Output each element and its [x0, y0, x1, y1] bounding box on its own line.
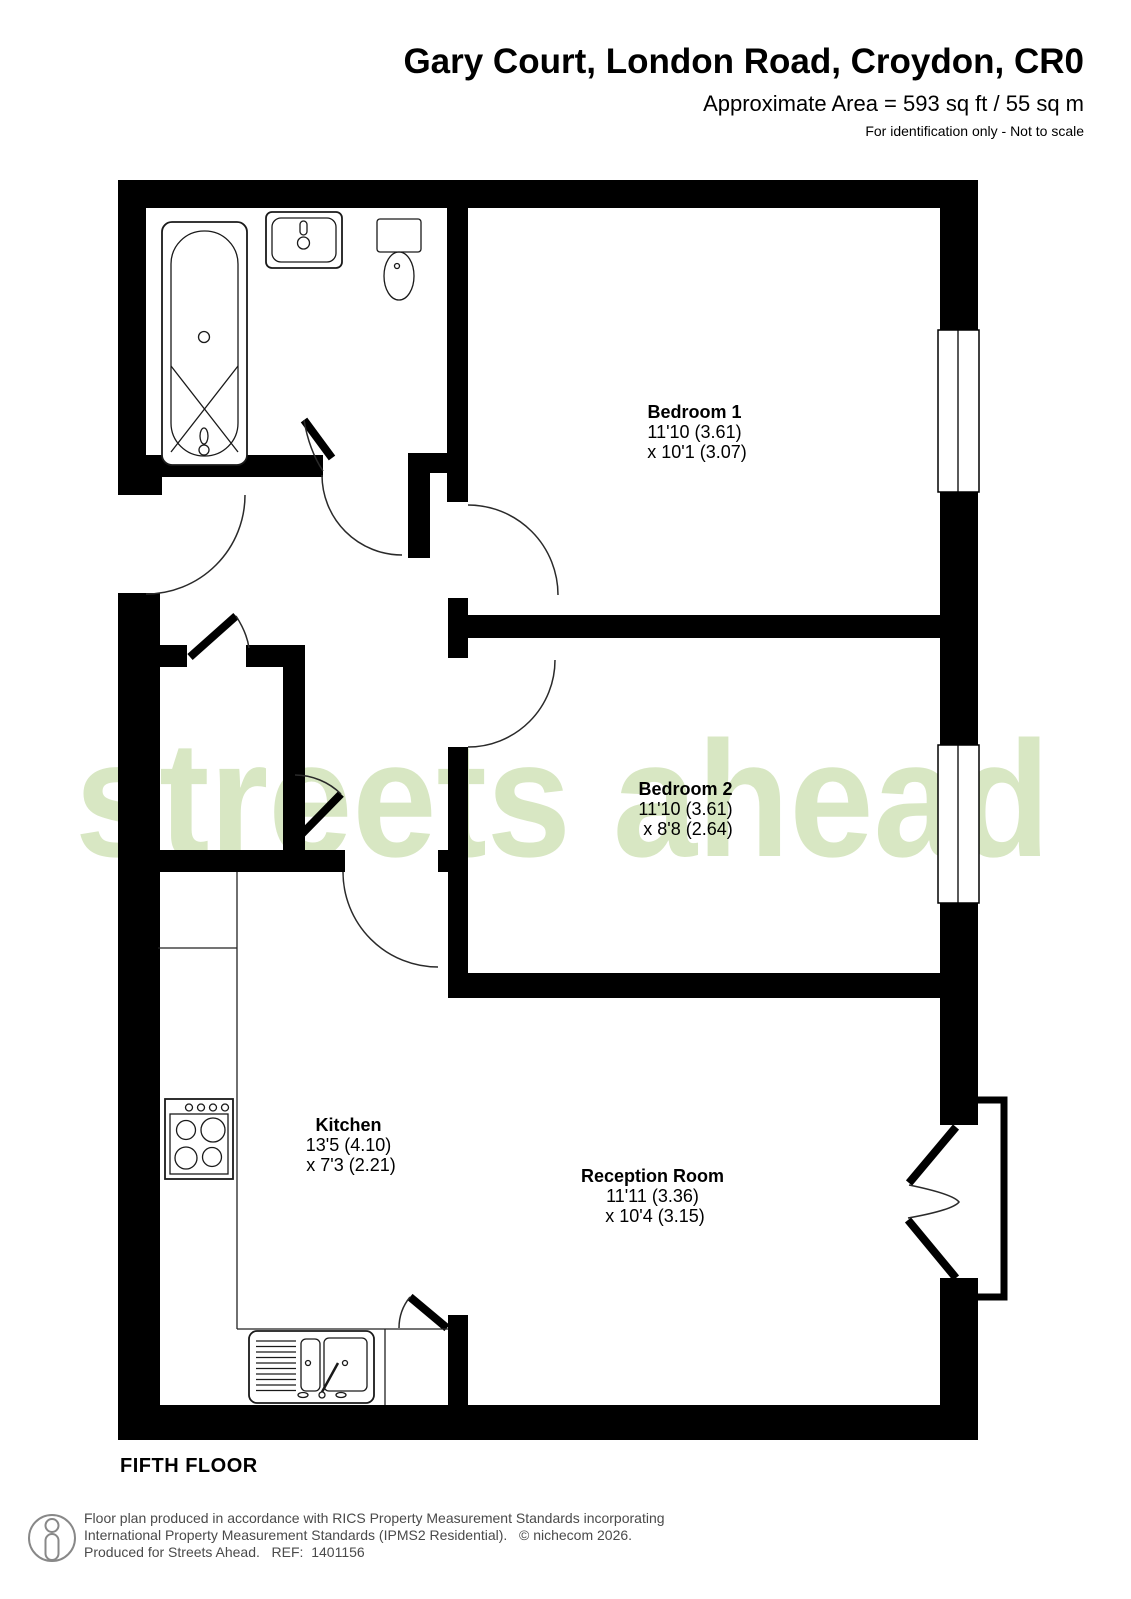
bedroom2-name: Bedroom 2 — [638, 779, 732, 799]
wall-right-a — [940, 208, 978, 330]
reception-name: Reception Room — [581, 1166, 724, 1186]
sink-unit-outer — [249, 1331, 374, 1403]
bedroom2-dim2: x 8'8 (2.64) — [643, 819, 732, 839]
bedroom1-dim1: 11'10 (3.61) — [647, 422, 741, 442]
wall-hall-stub — [408, 453, 430, 558]
footer-line-3: Produced for Streets Ahead. REF: 1401156 — [84, 1544, 365, 1560]
page-title: Gary Court, London Road, Croydon, CR0 — [403, 42, 1084, 81]
room-label-bedroom2: Bedroom 2 11'10 (3.61) x 8'8 (2.64) — [638, 779, 737, 839]
room-label-bedroom1: Bedroom 1 11'10 (3.61) x 10'1 (3.07) — [647, 402, 747, 462]
bathtub-icon — [162, 222, 247, 465]
floor-label: FIFTH FLOOR — [120, 1455, 258, 1477]
wall-bedroom-divider — [468, 615, 940, 638]
toilet-recess — [372, 208, 424, 256]
footer-line-2: International Property Measurement Stand… — [84, 1527, 632, 1543]
wall-cupboard-top-right — [246, 645, 305, 667]
basin-icon — [266, 212, 342, 268]
kitchen-name: Kitchen — [315, 1115, 381, 1135]
wall-bedroom-divider-jamb — [448, 598, 468, 658]
wall-left-upper — [118, 180, 146, 495]
room-label-kitchen: Kitchen 13'5 (4.10) x 7'3 (2.21) — [306, 1115, 397, 1175]
kitchen-dim2: x 7'3 (2.21) — [306, 1155, 395, 1175]
wall-top — [118, 180, 978, 208]
wall-bottom — [118, 1405, 978, 1440]
wall-kitchen-top — [158, 850, 345, 872]
wall-cupboard-right — [283, 665, 305, 855]
kitchen-dim1: 13'5 (4.10) — [306, 1135, 392, 1155]
kitchen-sink-icon — [249, 1331, 374, 1403]
wall-reception-door-stub — [448, 1315, 468, 1405]
reception-dim2: x 10'4 (3.15) — [605, 1206, 705, 1226]
bedroom1-dim2: x 10'1 (3.07) — [647, 442, 747, 462]
wall-bedroom2-left — [448, 747, 468, 998]
wall-cupboard-top-left — [158, 645, 187, 667]
wall-kitchen-top-right — [438, 850, 468, 872]
area-label: Approximate Area = 593 sq ft / 55 sq m — [703, 91, 1084, 116]
wall-left-lower — [118, 593, 160, 1405]
footer-line-1: Floor plan produced in accordance with R… — [84, 1510, 665, 1526]
reception-dim1: 11'11 (3.36) — [606, 1186, 699, 1206]
bedroom2-dim1: 11'10 (3.61) — [638, 799, 732, 819]
wall-right-b — [940, 492, 978, 745]
wall-right-d — [940, 1278, 978, 1405]
wall-right-c — [940, 903, 978, 1125]
wall-bedroom2-bottom — [448, 973, 940, 998]
hob-icon — [165, 1099, 233, 1179]
disclaimer-label: For identification only - Not to scale — [865, 123, 1084, 139]
floorplan-canvas: streets ahead Gary Court, London Road, C… — [0, 0, 1131, 1599]
bedroom1-name: Bedroom 1 — [647, 402, 741, 422]
